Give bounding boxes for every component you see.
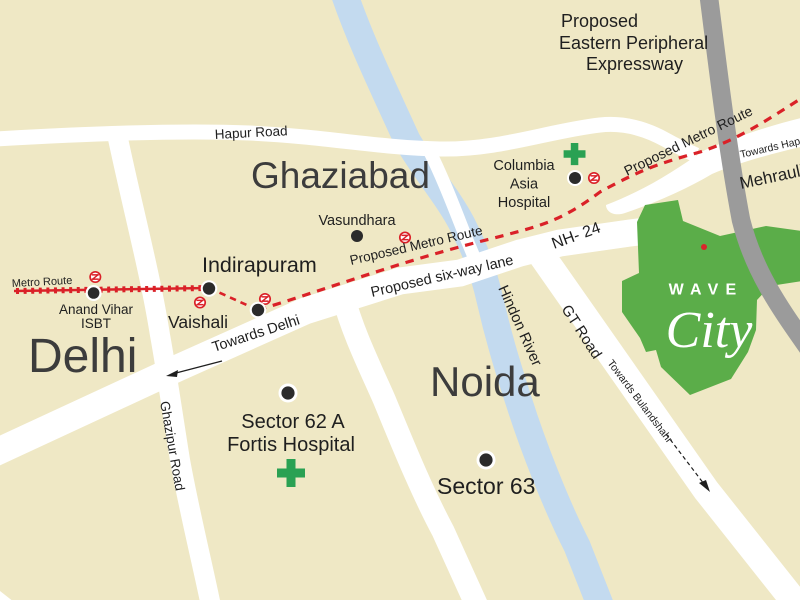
svg-text:Indirapuram: Indirapuram (202, 253, 317, 277)
svg-text:Proposed: Proposed (561, 11, 638, 31)
svg-text:Vaishali: Vaishali (168, 312, 228, 332)
svg-text:Asia: Asia (510, 177, 539, 193)
svg-text:WAVE: WAVE (669, 282, 744, 299)
svg-text:Anand Vihar: Anand Vihar (59, 302, 134, 317)
svg-text:Expressway: Expressway (586, 54, 683, 74)
svg-text:Sector 62 A: Sector 62 A (241, 411, 345, 433)
svg-text:Hospital: Hospital (498, 195, 550, 211)
svg-text:Columbia: Columbia (493, 158, 555, 174)
svg-text:Vasundhara: Vasundhara (318, 213, 396, 229)
svg-text:Sector 63: Sector 63 (437, 473, 535, 499)
svg-text:Ghaziabad: Ghaziabad (251, 155, 430, 196)
svg-text:Noida: Noida (430, 358, 540, 405)
svg-text:City: City (666, 302, 754, 359)
svg-text:Fortis Hospital: Fortis Hospital (227, 434, 355, 456)
svg-text:Eastern Peripheral: Eastern Peripheral (559, 33, 708, 53)
svg-text:Delhi: Delhi (28, 330, 137, 383)
svg-text:ISBT: ISBT (81, 316, 111, 331)
